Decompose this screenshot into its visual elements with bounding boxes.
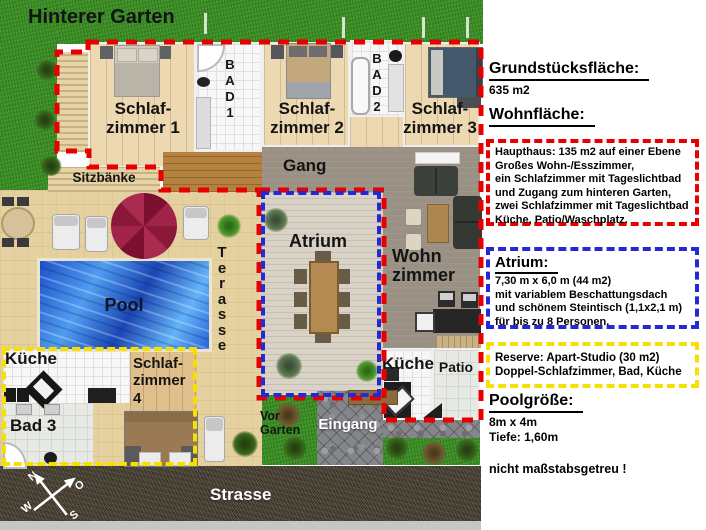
info-panel: Grundstücksfläche: 635 m2 Wohnfläche: Ha… — [486, 0, 702, 530]
label-sitzbaenke: Sitzbänke — [48, 170, 160, 185]
bush — [386, 436, 408, 460]
label-bad-1: B A D 1 — [222, 57, 238, 121]
dining-chair — [461, 292, 478, 308]
sideboard — [436, 336, 481, 348]
doormat — [348, 390, 398, 405]
haupthaus-info-box: Haupthaus: 135 m2 auf einer Ebene Großes… — [486, 139, 699, 226]
bed-double — [114, 45, 160, 97]
atrium-info-heading: Atrium: — [495, 254, 558, 274]
kitchen-counter — [88, 388, 116, 403]
coffee-table — [427, 204, 449, 243]
label-strasse: Strasse — [210, 485, 271, 504]
label-bad-3: Bad 3 — [10, 416, 56, 435]
label-eingang: Eingang — [315, 417, 381, 434]
atrium-info-text: 7,30 m x 6,0 m (44 m2) mit variablem Bes… — [495, 275, 690, 329]
nightstand — [271, 45, 284, 59]
label-schlafzimmer-2: Schlaf- zimmer 2 — [263, 99, 351, 137]
compass-s: S — [68, 508, 81, 522]
label-schlafzimmer-4: Schlaf- zimmer 4 — [133, 355, 186, 407]
label-hinterer-garten: Hinterer Garten — [28, 6, 175, 28]
sofa — [414, 166, 458, 196]
sideboard — [415, 152, 460, 164]
bathtub — [351, 57, 370, 115]
stove — [4, 388, 16, 402]
garden-chair — [2, 238, 14, 247]
reserve-info-text: Reserve: Apart-Studio (30 m2) Doppel-Sch… — [495, 352, 690, 379]
bed-double — [286, 43, 331, 99]
sink — [389, 50, 402, 62]
potted-plant — [356, 360, 378, 382]
label-pool: Pool — [94, 295, 154, 315]
potted-plant — [217, 214, 241, 238]
label-schlafzimmer-1: Schlaf- zimmer 1 — [99, 99, 187, 137]
compass-rose-icon: N O W S — [18, 462, 86, 530]
dining-chair — [438, 291, 455, 307]
sink — [16, 404, 32, 415]
garden-chair — [17, 197, 29, 206]
fence-post — [466, 17, 469, 38]
fence-post — [204, 13, 207, 34]
grundstueck-section: Grundstücksfläche: 635 m2 — [489, 60, 649, 97]
stone-table — [309, 261, 339, 334]
pool-heading: Poolgröße: — [489, 392, 583, 413]
floorplan-stage: Hinterer Garten Sitzbänke Schlaf- zimmer… — [0, 0, 706, 530]
label-terasse: T e r a s s e — [213, 245, 231, 354]
label-bad-2: B A D 2 — [369, 51, 385, 115]
fence-post — [342, 17, 345, 38]
entry-deck — [163, 152, 262, 192]
dining-table — [433, 309, 481, 333]
bed-double — [428, 47, 483, 98]
parasol-icon — [111, 193, 177, 259]
sun-lounger — [52, 214, 80, 250]
label-gang: Gang — [283, 156, 326, 175]
armchair — [405, 208, 422, 226]
sun-lounger — [85, 216, 108, 252]
bush — [232, 431, 258, 457]
label-wohnzimmer: Wohn zimmer — [392, 247, 455, 285]
fence-post — [422, 17, 425, 38]
pool-section: Poolgröße: 8m x 4m Tiefe: 1,60m — [489, 392, 583, 444]
sofa — [453, 196, 482, 249]
sun-lounger — [183, 206, 209, 240]
bush — [456, 438, 478, 462]
compass-w: W — [19, 499, 35, 515]
oven — [17, 388, 29, 402]
bath-counter — [196, 97, 211, 149]
atrium-chair — [294, 314, 307, 329]
toilet — [197, 77, 210, 87]
scale-disclaimer: nicht maßstabsgetreu ! — [489, 462, 627, 476]
label-atrium: Atrium — [289, 231, 347, 251]
bush — [283, 436, 307, 460]
potted-plant — [264, 208, 288, 232]
atrium-chair — [294, 292, 307, 307]
pool-size: 8m x 4m — [489, 415, 583, 429]
label-vor-garten: Vor Garten — [260, 409, 300, 437]
dining-chair — [415, 312, 435, 332]
label-patio: Patio — [432, 360, 480, 376]
garden-chair — [2, 197, 14, 206]
sun-lounger — [204, 416, 225, 462]
sink — [44, 404, 60, 415]
wohnflaeche-section: Wohnfläche: — [489, 106, 595, 127]
atrium-info-box: Atrium: 7,30 m x 6,0 m (44 m2) mit varia… — [486, 247, 699, 329]
compass-o: O — [73, 478, 86, 493]
grundstueck-heading: Grundstücksfläche: — [489, 60, 649, 81]
potted-plant — [276, 353, 302, 379]
bush — [421, 441, 447, 465]
garden-table — [1, 207, 35, 240]
label-kueche-haupthaus: Küche — [382, 354, 432, 373]
label-kueche-studio: Küche — [5, 349, 57, 368]
atrium-chair — [294, 269, 307, 284]
wohnflaeche-heading: Wohnfläche: — [489, 106, 595, 127]
garden-chair — [17, 238, 29, 247]
bed-double — [124, 411, 198, 467]
side-deck — [57, 52, 88, 152]
grundstueck-value: 635 m2 — [489, 83, 649, 97]
grass-tuft — [34, 110, 56, 130]
reserve-info-box: Reserve: Apart-Studio (30 m2) Doppel-Sch… — [486, 342, 699, 388]
haupthaus-info-text: Haupthaus: 135 m2 auf einer Ebene Großes… — [495, 146, 690, 227]
pool-depth: Tiefe: 1,60m — [489, 430, 583, 444]
nightstand — [330, 45, 343, 58]
label-schlafzimmer-3: Schlaf- zimmer 3 — [396, 99, 484, 137]
nightstand — [100, 46, 113, 59]
grass-tuft — [36, 60, 58, 80]
